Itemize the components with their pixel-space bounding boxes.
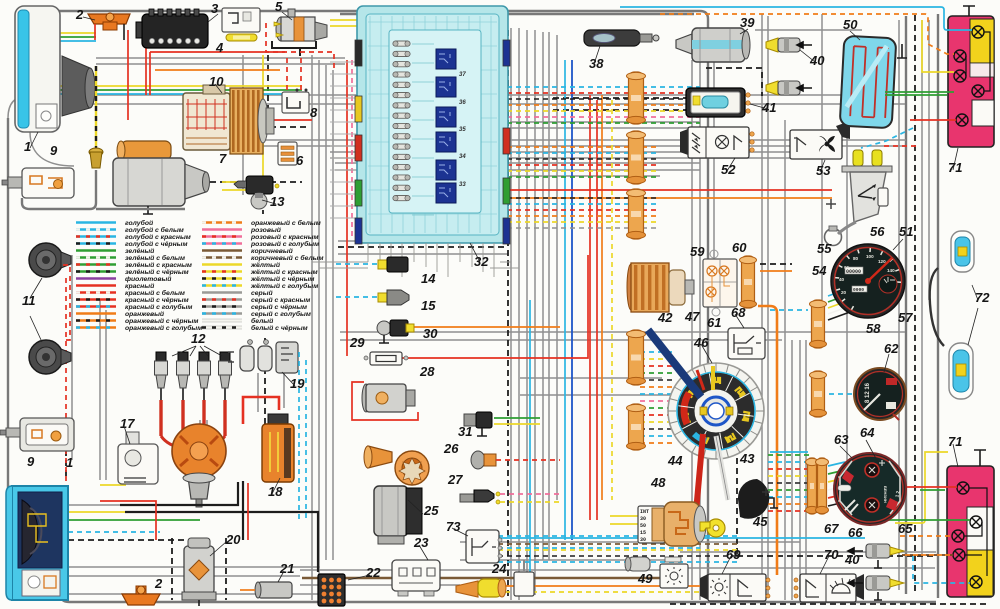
svg-text:31: 31	[458, 424, 472, 439]
svg-text:48: 48	[650, 475, 666, 490]
svg-text:голубой с красным: голубой с красным	[125, 233, 191, 241]
svg-text:серый с голубым: серый с голубым	[251, 310, 311, 318]
svg-text:10: 10	[209, 74, 224, 89]
svg-text:красный с голубым: красный с голубым	[125, 303, 192, 311]
svg-text:57: 57	[898, 310, 913, 325]
svg-text:53: 53	[816, 163, 831, 178]
svg-text:15: 15	[640, 530, 646, 536]
svg-text:розовый с голубым: розовый с голубым	[250, 240, 319, 248]
svg-text:71: 71	[948, 160, 962, 175]
svg-text:71: 71	[948, 434, 962, 449]
svg-text:20: 20	[841, 290, 847, 295]
svg-text:100: 100	[866, 254, 874, 259]
svg-text:оранжевый с чёрным: оранжевый с чёрным	[125, 317, 198, 325]
svg-text:серый с чёрным: серый с чёрным	[251, 303, 307, 311]
svg-text:64: 64	[860, 425, 875, 440]
svg-text:серый: серый	[251, 289, 274, 297]
svg-text:58: 58	[866, 321, 881, 336]
svg-text:29: 29	[349, 335, 365, 350]
svg-text:3: 3	[211, 1, 219, 16]
svg-text:140: 140	[887, 268, 895, 273]
svg-text:43: 43	[739, 451, 755, 466]
svg-text:46: 46	[693, 335, 709, 350]
svg-text:оранжевый: оранжевый	[125, 310, 165, 318]
svg-text:20: 20	[225, 532, 241, 547]
svg-text:голубой с белым: голубой с белым	[125, 226, 184, 234]
svg-text:7: 7	[219, 151, 227, 166]
svg-text:32: 32	[474, 254, 489, 269]
svg-text:34: 34	[459, 154, 466, 160]
svg-text:22: 22	[365, 565, 381, 580]
svg-text:INT: INT	[640, 509, 649, 515]
svg-text:15: 15	[421, 298, 436, 313]
svg-text:зелёный: зелёный	[125, 247, 155, 255]
svg-text:8: 8	[310, 105, 318, 120]
svg-text:52: 52	[721, 162, 736, 177]
svg-text:17: 17	[120, 416, 135, 431]
svg-text:6: 6	[296, 153, 304, 168]
svg-text:0000: 0000	[853, 287, 864, 293]
svg-text:30: 30	[640, 537, 646, 543]
svg-text:голубой с чёрным: голубой с чёрным	[125, 240, 188, 248]
svg-text:коричневый с белым: коричневый с белым	[251, 254, 324, 262]
svg-text:54: 54	[812, 263, 827, 278]
svg-text:25: 25	[423, 503, 439, 518]
svg-text:70: 70	[824, 547, 839, 562]
svg-text:40: 40	[809, 53, 825, 68]
svg-text:45: 45	[752, 514, 768, 529]
svg-text:БЕНЗИН: БЕНЗИН	[883, 486, 888, 503]
svg-text:розовый: розовый	[250, 226, 282, 234]
svg-text:28: 28	[419, 364, 435, 379]
svg-text:26: 26	[443, 441, 459, 456]
svg-text:9: 9	[27, 454, 35, 469]
svg-text:14: 14	[421, 271, 436, 286]
svg-text:50: 50	[640, 523, 646, 529]
svg-text:оранжевый с белым: оранжевый с белым	[251, 219, 321, 227]
svg-text:61: 61	[707, 315, 721, 330]
svg-text:68: 68	[731, 305, 746, 320]
svg-text:9: 9	[50, 143, 58, 158]
svg-text:21: 21	[279, 561, 294, 576]
svg-text:красный: красный	[125, 282, 155, 290]
svg-text:80: 80	[853, 256, 859, 261]
svg-text:30: 30	[640, 516, 646, 522]
svg-text:37: 37	[459, 72, 466, 78]
svg-text:56: 56	[870, 224, 885, 239]
svg-text:47: 47	[684, 309, 700, 324]
svg-text:1: 1	[24, 139, 31, 154]
svg-text:жёлтый с красным: жёлтый с красным	[250, 268, 318, 276]
svg-text:40: 40	[844, 552, 860, 567]
svg-text:44: 44	[667, 453, 683, 468]
svg-text:55: 55	[817, 241, 832, 256]
svg-text:розовый с красным: розовый с красным	[250, 233, 319, 241]
svg-text:11: 11	[22, 293, 36, 308]
svg-text:30: 30	[423, 326, 438, 341]
svg-text:60: 60	[732, 240, 747, 255]
svg-text:69: 69	[726, 547, 741, 562]
svg-text:2: 2	[154, 576, 163, 591]
svg-text:13: 13	[270, 194, 285, 209]
svg-text:42: 42	[657, 310, 673, 325]
svg-text:51: 51	[899, 224, 913, 239]
svg-text:33: 33	[459, 182, 466, 188]
svg-text:жёлтый с голубым: жёлтый с голубым	[250, 282, 318, 290]
svg-text:белый: белый	[251, 317, 274, 325]
svg-text:65: 65	[898, 521, 913, 536]
svg-text:49: 49	[637, 571, 653, 586]
svg-text:63: 63	[834, 432, 849, 447]
svg-text:2: 2	[75, 7, 84, 22]
svg-text:коричневый: коричневый	[251, 247, 294, 255]
svg-text:зелёный с красным: зелёный с красным	[125, 261, 192, 269]
svg-text:фиолетовый: фиолетовый	[125, 275, 172, 283]
svg-text:красный с белым: красный с белым	[125, 289, 185, 297]
svg-text:8 12 16: 8 12 16	[865, 382, 871, 403]
svg-text:серый с красным: серый с красным	[251, 296, 310, 304]
svg-text:36: 36	[459, 100, 466, 106]
svg-text:27: 27	[447, 472, 463, 487]
svg-text:50: 50	[843, 17, 858, 32]
svg-text:жёлтый с чёрным: жёлтый с чёрным	[250, 275, 314, 283]
svg-text:жёлтый: жёлтый	[250, 261, 281, 269]
svg-text:4: 4	[215, 40, 224, 55]
svg-text:67: 67	[824, 521, 839, 536]
svg-text:1: 1	[66, 455, 73, 470]
svg-text:голубой: голубой	[125, 219, 154, 227]
svg-text:39: 39	[740, 15, 755, 30]
svg-text:5: 5	[275, 0, 283, 14]
svg-text:24: 24	[491, 561, 507, 576]
svg-text:12: 12	[191, 331, 206, 346]
svg-text:40: 40	[839, 277, 845, 282]
svg-text:белый с чёрным: белый с чёрным	[251, 324, 308, 332]
svg-text:зелёный с белым: зелёный с белым	[125, 254, 185, 262]
svg-text:красный с чёрным: красный с чёрным	[125, 296, 189, 304]
svg-text:62: 62	[884, 341, 899, 356]
svg-text:00000: 00000	[846, 269, 861, 275]
svg-text:59: 59	[690, 244, 705, 259]
svg-text:35: 35	[459, 127, 466, 133]
svg-text:зелёный с чёрным: зелёный с чёрным	[125, 268, 189, 276]
svg-text:38: 38	[589, 56, 604, 71]
svg-text:66: 66	[848, 525, 863, 540]
